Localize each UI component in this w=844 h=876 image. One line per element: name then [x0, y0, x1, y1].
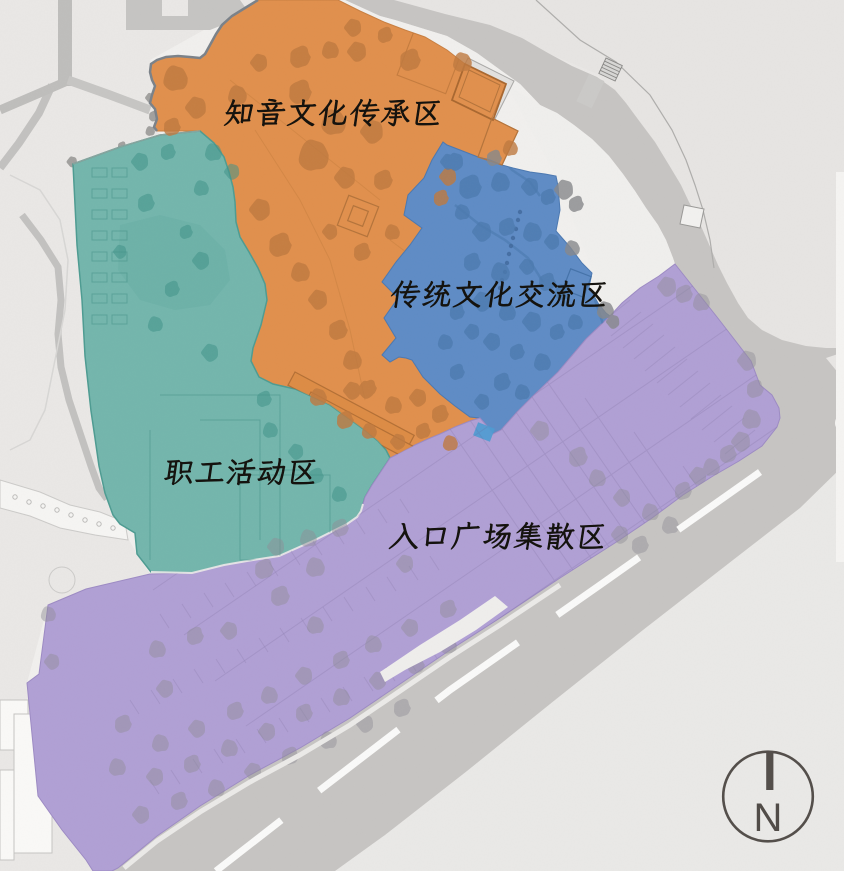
- svg-text:N: N: [754, 796, 783, 840]
